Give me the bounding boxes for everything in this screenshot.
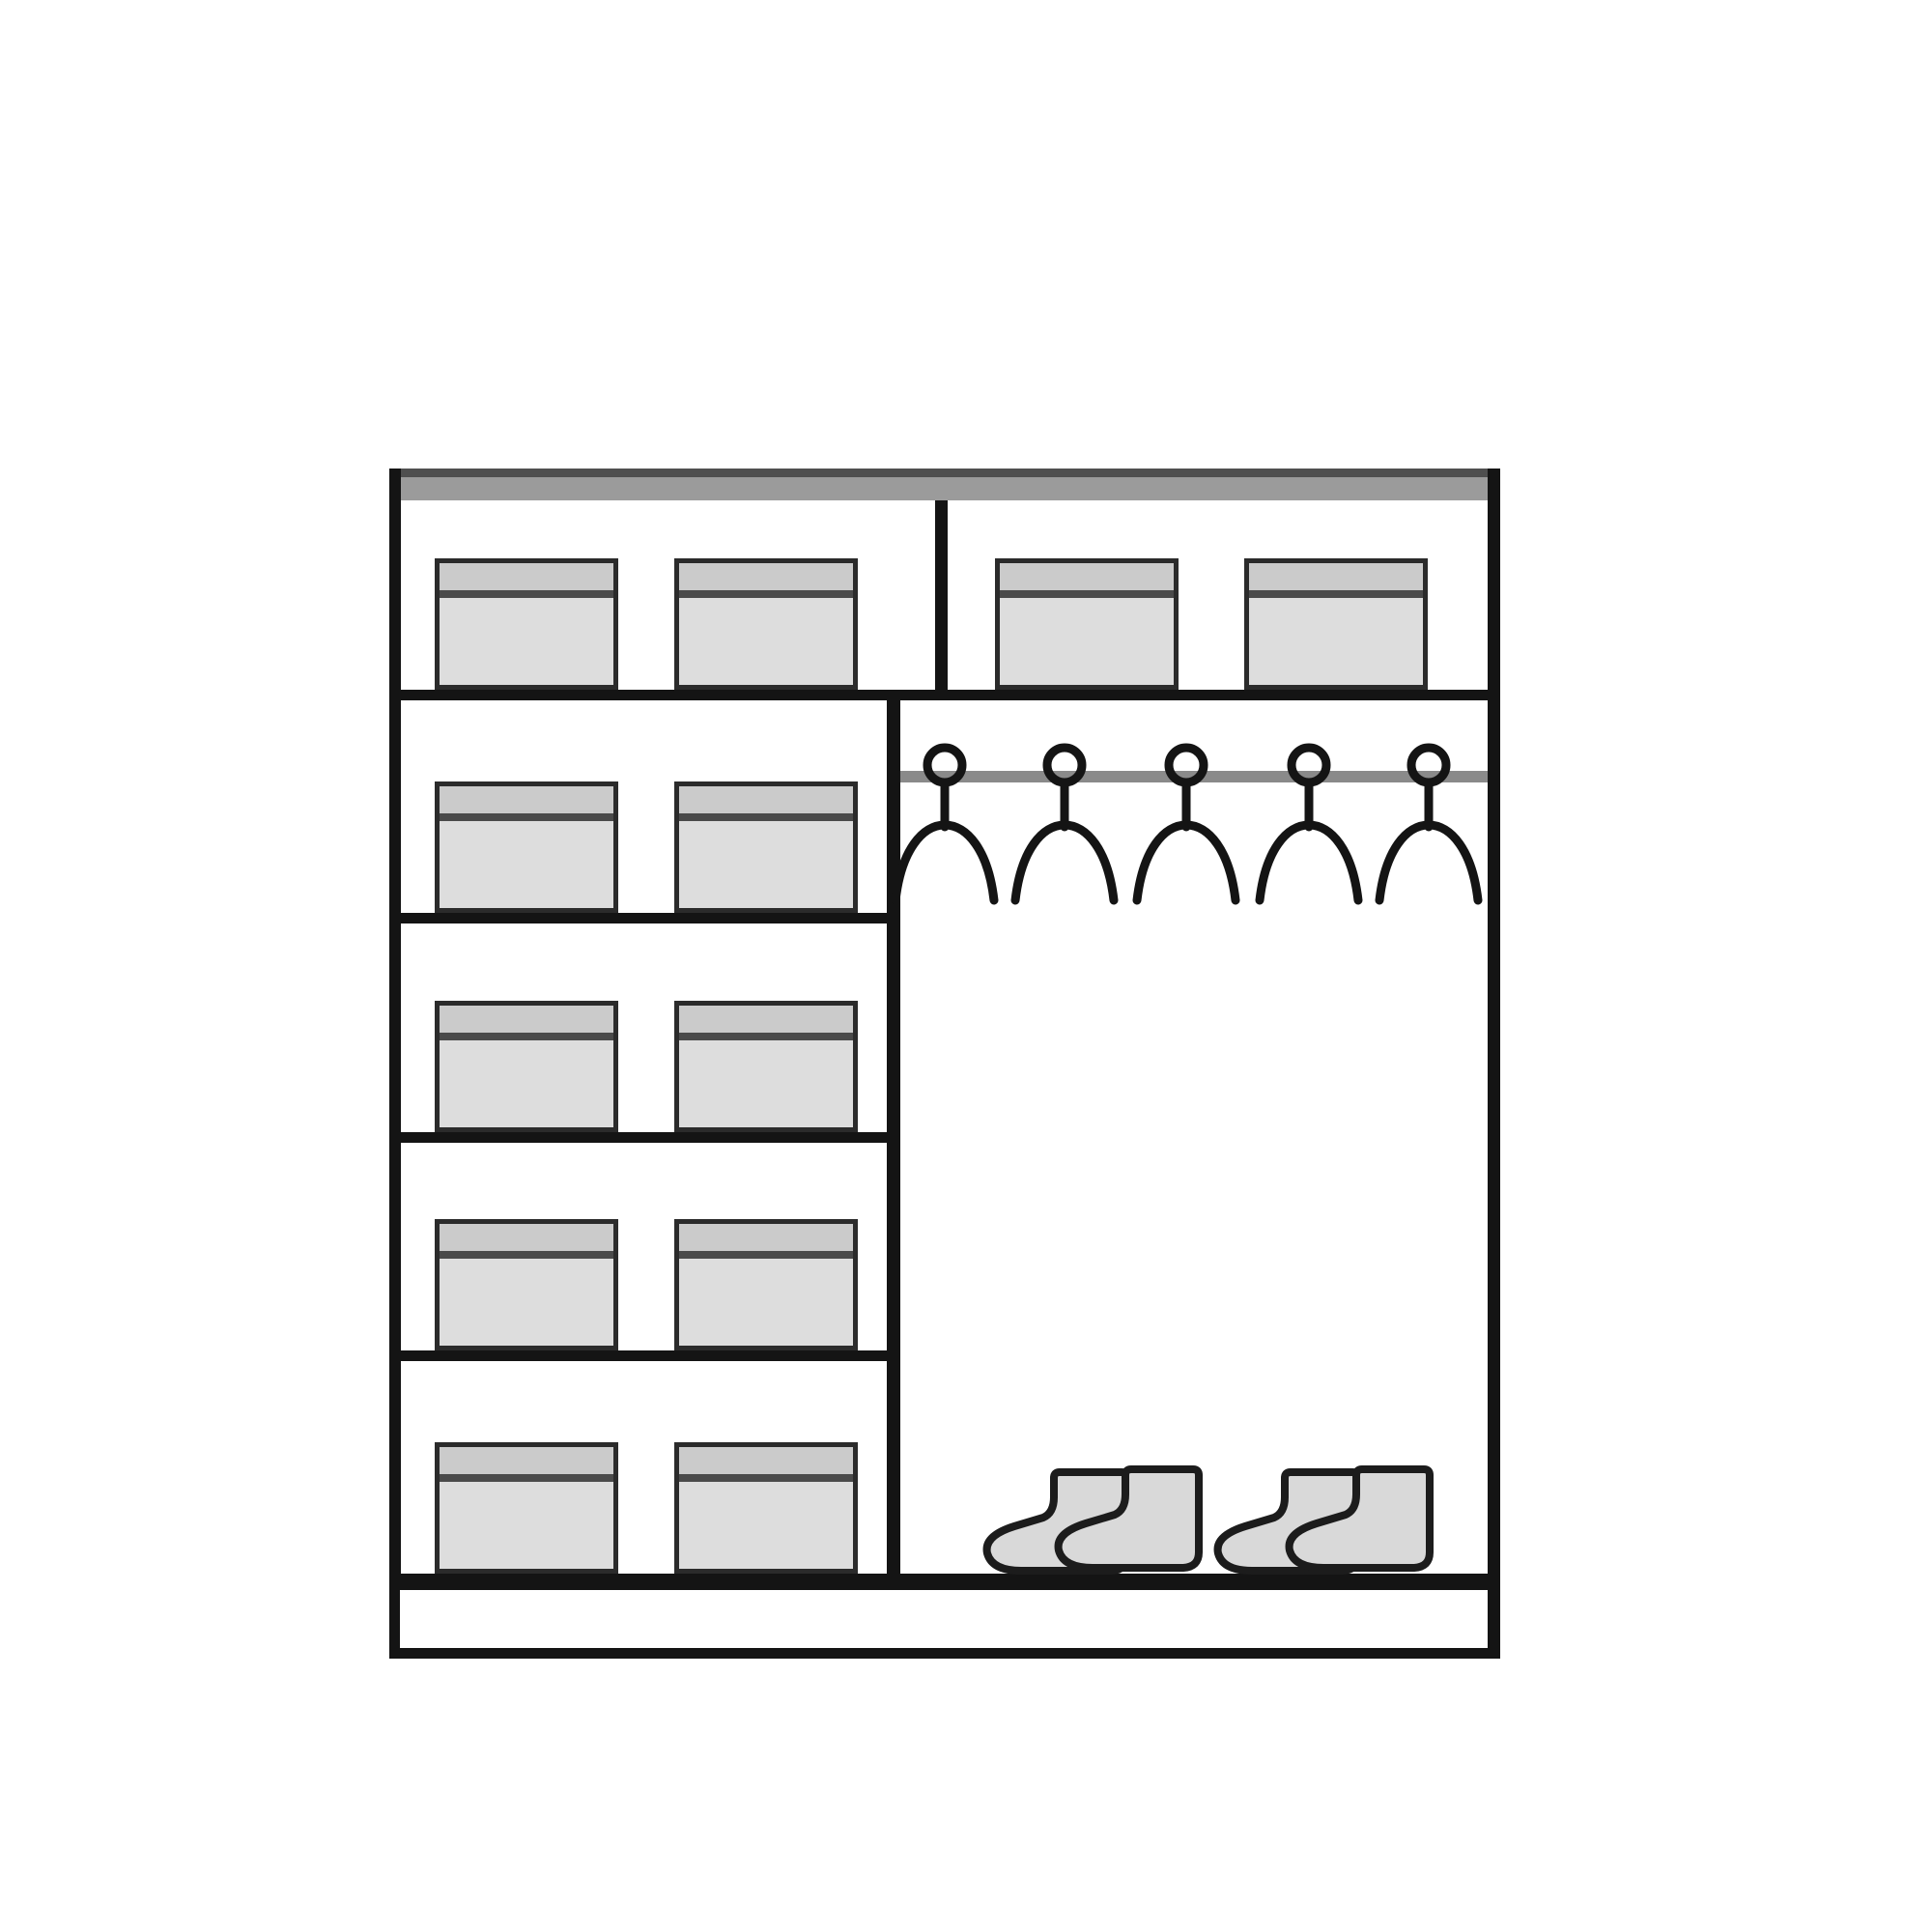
storage-box-lid	[679, 786, 853, 821]
storage-box-lid	[679, 563, 853, 598]
storage-box-lid	[440, 1006, 613, 1040]
wardrobe-left-side	[389, 469, 401, 1659]
hanger-icon	[1379, 748, 1478, 900]
storage-box-lid	[440, 786, 613, 821]
storage-box	[674, 1219, 858, 1350]
hangers-icon	[889, 734, 1584, 908]
storage-box-lid	[1249, 563, 1423, 598]
storage-box	[1244, 558, 1428, 690]
storage-box	[435, 1442, 618, 1574]
storage-box-lid	[440, 1224, 613, 1259]
shelf-board	[400, 1132, 900, 1143]
storage-box	[435, 558, 618, 690]
storage-box-lid	[679, 1006, 853, 1040]
storage-box	[435, 781, 618, 913]
hanger-icon	[895, 748, 994, 900]
hanger-icon	[1137, 748, 1236, 900]
plinth	[400, 1590, 1488, 1648]
hanger-icon	[1015, 748, 1114, 900]
wardrobe-top-panel	[401, 469, 1488, 500]
shelf-board	[400, 1350, 900, 1361]
wardrobe-bottom-edge	[389, 1648, 1500, 1659]
storage-box-lid	[440, 563, 613, 598]
storage-box	[674, 781, 858, 913]
shelf-board	[400, 913, 900, 923]
boots-pair-icon	[1213, 1466, 1435, 1575]
storage-box	[674, 1442, 858, 1574]
storage-box-lid	[679, 1447, 853, 1482]
wardrobe-diagram	[0, 0, 1932, 1932]
storage-box-lid	[679, 1224, 853, 1259]
boots-pair-icon	[982, 1466, 1205, 1575]
storage-box	[435, 1001, 618, 1132]
wardrobe-floor	[400, 1574, 1488, 1590]
storage-box	[435, 1219, 618, 1350]
storage-box	[674, 558, 858, 690]
hanger-icon	[1260, 748, 1358, 900]
storage-box	[674, 1001, 858, 1132]
storage-box-lid	[440, 1447, 613, 1482]
top-shelf-divider	[935, 500, 948, 694]
storage-box	[995, 558, 1179, 690]
storage-box-lid	[1000, 563, 1174, 598]
wardrobe-right-side	[1488, 469, 1500, 1659]
